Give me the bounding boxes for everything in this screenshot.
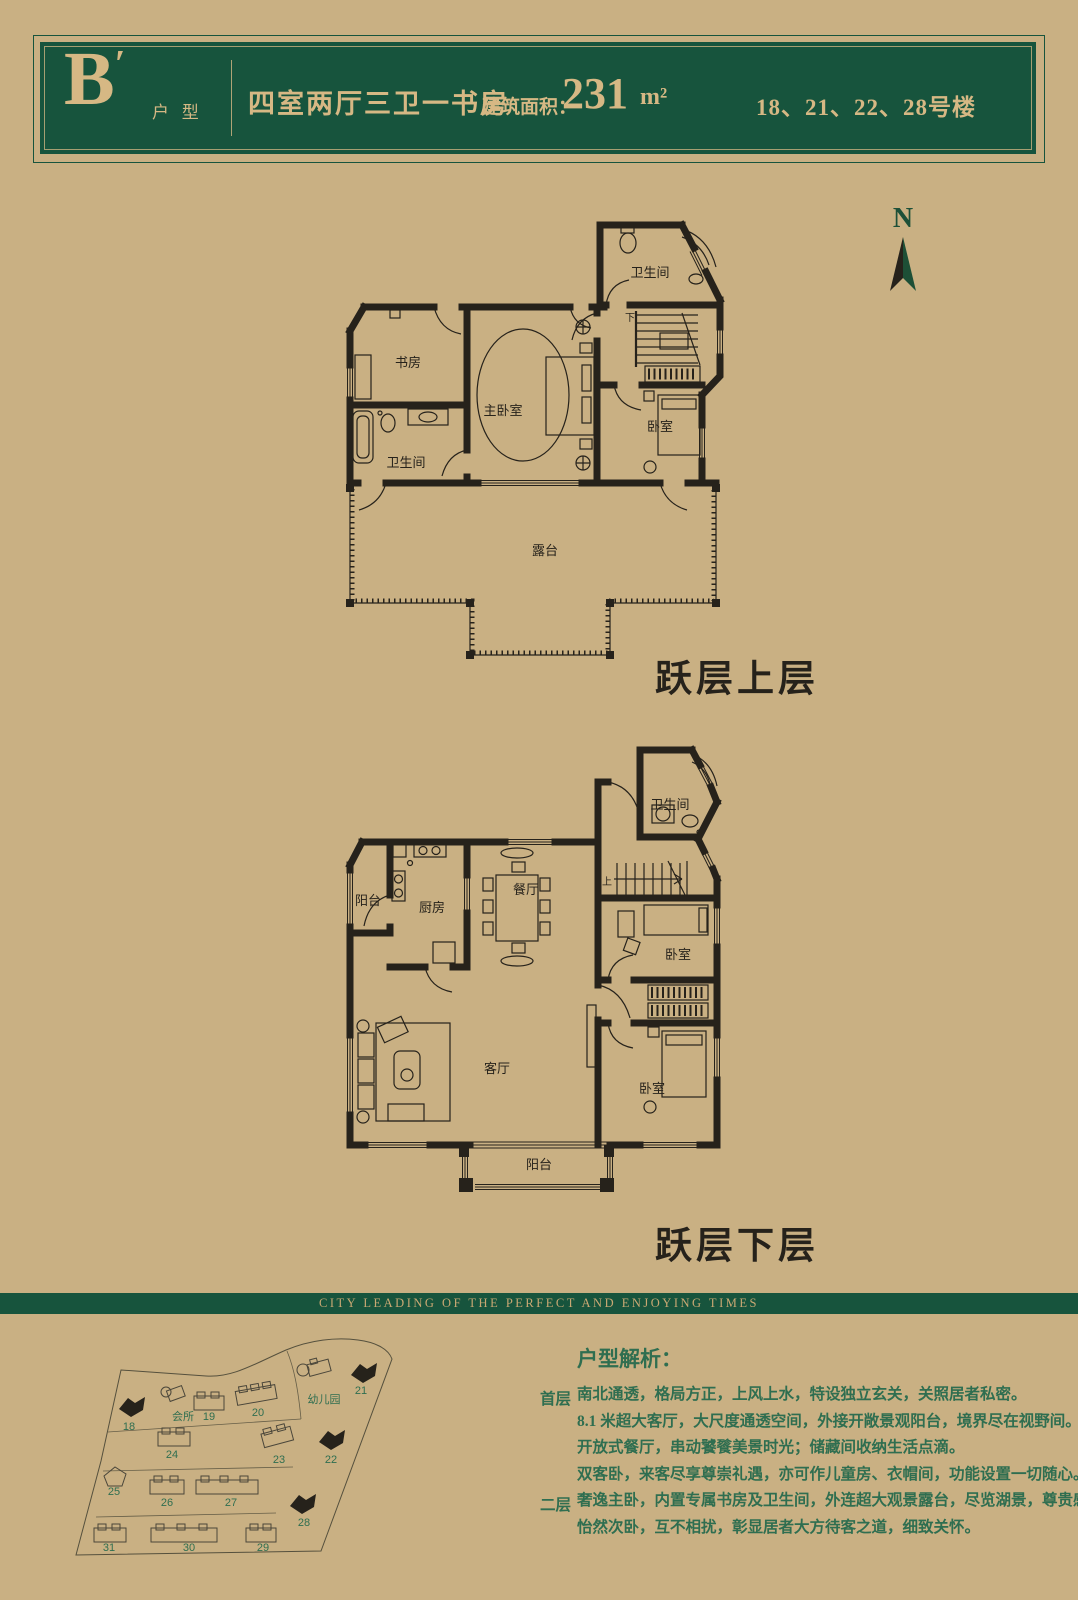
site-map-labels: 18 19 20 21 22 23 24 25 26 27 28 29 30 3…: [103, 1385, 367, 1554]
map-label-20: 20: [252, 1407, 264, 1419]
room-label-terrace: 露台: [532, 543, 558, 558]
slogan-banner: CITY LEADING OF THE PERFECT AND ENJOYING…: [0, 1293, 1078, 1314]
upper-plan-walls: [350, 225, 720, 483]
upper-plan-stairs: [636, 311, 700, 367]
room-label-bedroom-south: 卧室: [639, 1081, 665, 1096]
map-label-31: 31: [103, 1542, 115, 1554]
lower-plan-stairs: [614, 861, 687, 897]
analysis-line: 8.1 米超大客厅，大尺度通透空间，外接开敞景观阳台，境界尽在视野间。: [577, 1409, 1078, 1436]
map-label-28: 28: [298, 1517, 310, 1529]
lower-stairs-label: 上: [602, 876, 612, 888]
upper-plan-wardrobe: [645, 366, 700, 382]
map-label-19: 19: [203, 1411, 215, 1423]
room-label-living: 客厅: [484, 1061, 510, 1076]
map-label-25: 25: [108, 1486, 120, 1498]
unit-type-suffix: 户 型: [152, 98, 203, 123]
map-label-22: 22: [325, 1454, 337, 1466]
floor-plan-lower: 上: [330, 735, 730, 1215]
site-map: 18 19 20 21 22 23 24 25 26 27 28 29 30 3…: [58, 1318, 418, 1573]
area-unit: m²: [640, 84, 667, 111]
analysis-line: 开放式餐厅，串动饕餮美景时光；储藏间收纳生活点滴。: [577, 1435, 1078, 1462]
area-value: 231: [562, 68, 628, 119]
upper-stairs-label: 下: [625, 313, 635, 324]
floor-plan-upper: 下: [330, 215, 730, 667]
map-label-26: 26: [161, 1497, 173, 1509]
upper-plan-terrace-railing: [346, 484, 720, 659]
room-label-balcony-south: 阳台: [526, 1157, 552, 1172]
map-label-30: 30: [183, 1542, 195, 1554]
poster-page: B′ 户 型 四室两厅三卫一书房 建筑面积： 231 m² 18、21、22、2…: [0, 0, 1078, 1600]
analysis-section-second-floor: 二层 奢逸主卧，内置专属书房及卫生间，外连超大观景露台，尽览湖景，尊贵感浸润其中…: [540, 1488, 1078, 1541]
analysis-block: 户型解析： 首层 南北通透，格局方正，上风上水，特设独立玄关，关照居者私密。 8…: [540, 1343, 1078, 1541]
analysis-line: 奢逸主卧，内置专属书房及卫生间，外连超大观景露台，尽览湖景，尊贵感浸润其中: [577, 1488, 1078, 1515]
room-label-dining: 餐厅: [513, 882, 539, 897]
room-label-bedroom: 卧室: [647, 419, 673, 434]
room-label-kitchen: 厨房: [419, 900, 445, 915]
room-label-bath-top: 卫生间: [630, 265, 669, 280]
map-label-29: 29: [257, 1542, 269, 1554]
slogan-text: CITY LEADING OF THE PERFECT AND ENJOYING…: [319, 1296, 759, 1310]
header-divider: [231, 60, 232, 136]
compass-arrow-icon: [886, 235, 920, 297]
lower-plan-title: 跃层下层: [655, 1215, 819, 1269]
room-layout-text: 四室两厅三卫一书房: [248, 82, 509, 121]
analysis-line: 双客卧，来客尽享尊崇礼遇，亦可作儿童房、衣帽间，功能设置一切随心。: [577, 1462, 1078, 1489]
compass: N: [868, 203, 938, 302]
upper-plan-title: 跃层上层: [655, 648, 819, 702]
room-label-balcony-west: 阳台: [355, 893, 381, 908]
lower-plan-closets: [648, 985, 708, 1018]
unit-prime-mark: ′: [115, 43, 126, 85]
map-label-kindergarten: 幼儿园: [308, 1393, 341, 1406]
map-label-23: 23: [273, 1454, 285, 1466]
room-label-bath-low: 卫生间: [386, 455, 425, 470]
header-box: B′ 户 型 四室两厅三卫一书房 建筑面积： 231 m² 18、21、22、2…: [40, 42, 1036, 154]
map-label-21: 21: [355, 1385, 367, 1397]
site-map-boundary: [76, 1339, 392, 1555]
analysis-line: 怡然次卧，互不相扰，彰显居者大方待客之道，细致关怀。: [577, 1515, 1078, 1542]
map-label-24: 24: [166, 1449, 178, 1461]
analysis-heading: 户型解析：: [577, 1343, 1078, 1373]
upper-plan-furniture: [353, 227, 716, 473]
room-label-study: 书房: [395, 355, 421, 370]
room-label-bath: 卫生间: [650, 797, 689, 812]
unit-type-letter: B′: [64, 36, 125, 123]
analysis-section-first-floor: 首层 南北通透，格局方正，上风上水，特设独立玄关，关照居者私密。 8.1 米超大…: [540, 1382, 1078, 1488]
building-numbers: 18、21、22、28号楼: [756, 88, 976, 122]
map-label-clubhouse: 会所: [172, 1410, 194, 1423]
room-label-master: 主卧室: [483, 403, 522, 418]
analysis-section-label: 首层: [540, 1382, 577, 1488]
analysis-line: 南北通透，格局方正，上风上水，特设独立玄关，关照居者私密。: [577, 1382, 1078, 1409]
room-label-bedroom-north: 卧室: [665, 947, 691, 962]
analysis-section-label: 二层: [540, 1488, 577, 1541]
compass-north-label: N: [868, 203, 938, 235]
map-label-27: 27: [225, 1497, 237, 1509]
map-label-18: 18: [123, 1421, 135, 1433]
